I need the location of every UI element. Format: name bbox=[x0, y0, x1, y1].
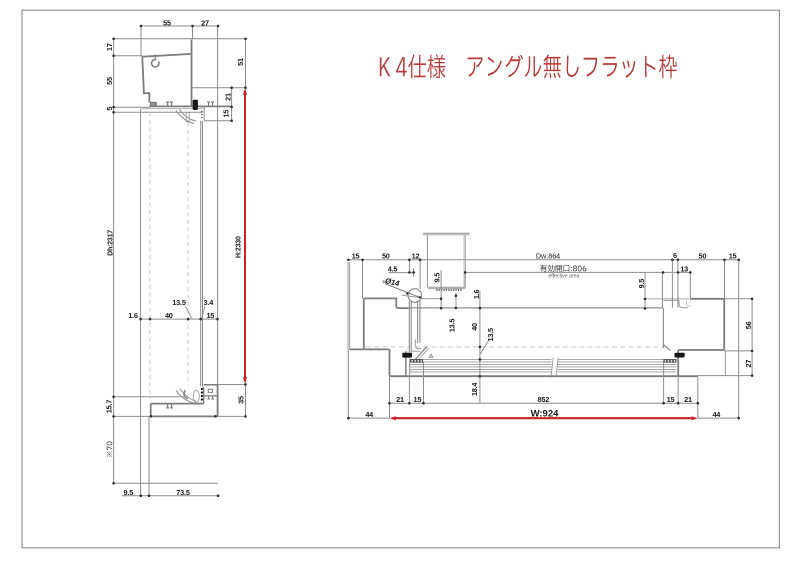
svg-text:9.5: 9.5 bbox=[433, 273, 442, 283]
svg-text:15: 15 bbox=[352, 251, 360, 260]
svg-text:40: 40 bbox=[165, 311, 173, 320]
svg-text:50: 50 bbox=[382, 251, 390, 260]
svg-text:4.5: 4.5 bbox=[388, 265, 398, 274]
svg-text:Dw:864: Dw:864 bbox=[536, 251, 560, 260]
svg-text:1.6: 1.6 bbox=[128, 311, 138, 320]
svg-text:56: 56 bbox=[744, 321, 753, 329]
svg-text:Dh:2317: Dh:2317 bbox=[107, 230, 114, 256]
svg-text:15: 15 bbox=[729, 251, 737, 260]
svg-text:21: 21 bbox=[224, 93, 233, 101]
svg-text:12: 12 bbox=[412, 251, 420, 260]
svg-text:44: 44 bbox=[712, 410, 721, 419]
svg-text:55: 55 bbox=[105, 77, 114, 85]
svg-text:15: 15 bbox=[667, 395, 675, 404]
svg-text:15.7: 15.7 bbox=[104, 400, 113, 414]
svg-text:55: 55 bbox=[163, 18, 171, 27]
svg-text:6: 6 bbox=[673, 251, 677, 260]
svg-text:W:924: W:924 bbox=[531, 408, 560, 419]
svg-text:15: 15 bbox=[206, 311, 214, 320]
svg-text:27: 27 bbox=[744, 360, 753, 368]
svg-text:18.4: 18.4 bbox=[470, 382, 479, 397]
svg-text:73.5: 73.5 bbox=[176, 488, 190, 497]
svg-text:40: 40 bbox=[470, 323, 479, 331]
svg-text:852: 852 bbox=[538, 395, 550, 404]
svg-text:effective area: effective area bbox=[548, 273, 579, 279]
svg-text:50: 50 bbox=[699, 251, 707, 260]
svg-text:5: 5 bbox=[105, 107, 114, 111]
svg-text:17: 17 bbox=[105, 43, 114, 51]
svg-text:21: 21 bbox=[684, 395, 692, 404]
svg-text:9.5: 9.5 bbox=[637, 279, 646, 289]
svg-text:9.5: 9.5 bbox=[124, 488, 134, 497]
svg-text:15: 15 bbox=[414, 395, 422, 404]
svg-text:3.4: 3.4 bbox=[204, 298, 215, 307]
svg-text:13: 13 bbox=[680, 265, 688, 274]
svg-text:21: 21 bbox=[396, 395, 404, 404]
svg-text:1.6: 1.6 bbox=[472, 289, 481, 299]
svg-text:13.5: 13.5 bbox=[172, 298, 186, 307]
svg-text:35: 35 bbox=[236, 396, 245, 404]
svg-text:H:2330: H:2330 bbox=[236, 236, 243, 258]
svg-text:13.5: 13.5 bbox=[447, 319, 456, 333]
svg-text:44: 44 bbox=[365, 410, 374, 419]
svg-text:15: 15 bbox=[222, 110, 231, 118]
svg-text:13.5: 13.5 bbox=[486, 328, 495, 342]
svg-text:51: 51 bbox=[236, 58, 245, 66]
svg-text:27: 27 bbox=[201, 18, 209, 27]
